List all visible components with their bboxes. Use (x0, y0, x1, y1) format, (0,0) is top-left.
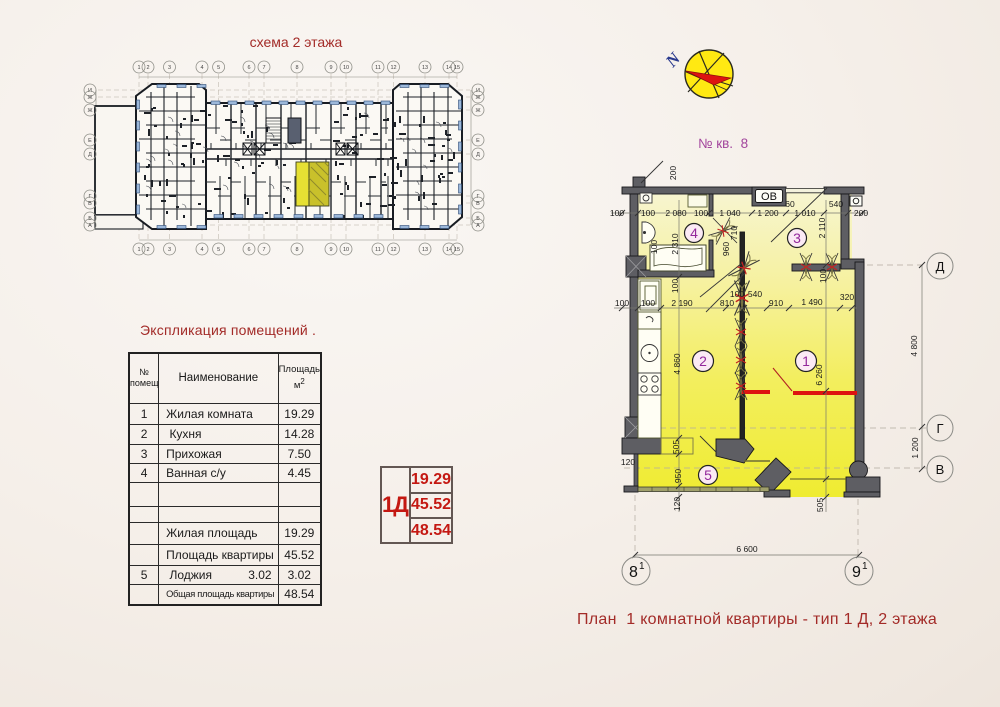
svg-text:В: В (476, 201, 480, 207)
svg-text:10: 10 (343, 65, 349, 71)
svg-text:Д: Д (88, 152, 92, 158)
svg-text:1: 1 (137, 65, 140, 71)
svg-text:8: 8 (295, 65, 298, 71)
svg-text:3: 3 (168, 247, 171, 253)
svg-text:5: 5 (217, 247, 220, 253)
svg-text:Д: Д (936, 259, 945, 274)
svg-text:4: 4 (200, 65, 203, 71)
svg-text:505: 505 (671, 440, 681, 454)
svg-text:2 190: 2 190 (671, 298, 693, 308)
svg-text:4 800: 4 800 (909, 335, 919, 357)
svg-text:200: 200 (668, 166, 678, 180)
svg-text:5: 5 (704, 467, 712, 483)
svg-text:Ж: Ж (475, 108, 480, 114)
svg-text:Ж: Ж (87, 108, 92, 114)
svg-text:6 600: 6 600 (736, 544, 758, 554)
svg-text:ОВ: ОВ (761, 191, 777, 203)
svg-text:9: 9 (852, 564, 861, 581)
svg-text:1: 1 (802, 353, 810, 369)
svg-text:6 260: 6 260 (814, 364, 824, 386)
svg-text:2 310: 2 310 (670, 233, 680, 255)
svg-text:Ж: Ж (87, 95, 92, 101)
svg-text:710: 710 (729, 226, 739, 240)
svg-text:9: 9 (329, 65, 332, 71)
svg-text:12: 12 (390, 65, 396, 71)
svg-text:1 200: 1 200 (757, 208, 779, 218)
svg-text:7: 7 (262, 65, 265, 71)
svg-text:60: 60 (785, 199, 795, 209)
svg-text:1: 1 (862, 561, 868, 572)
svg-text:2 110: 2 110 (817, 217, 827, 238)
svg-text:100: 100 (610, 208, 624, 218)
svg-text:А: А (88, 223, 92, 229)
svg-text:100: 100 (730, 289, 744, 299)
svg-text:540: 540 (829, 199, 843, 209)
svg-text:10: 10 (343, 247, 349, 253)
svg-text:1 010: 1 010 (794, 208, 816, 218)
svg-text:4: 4 (200, 247, 203, 253)
svg-text:100: 100 (649, 240, 659, 254)
svg-text:100: 100 (670, 279, 680, 293)
svg-text:В: В (88, 201, 92, 207)
svg-text:13: 13 (422, 247, 428, 253)
svg-text:11: 11 (375, 247, 381, 253)
svg-text:8: 8 (629, 564, 638, 581)
svg-text:8: 8 (295, 247, 298, 253)
svg-text:910: 910 (769, 298, 783, 308)
svg-text:4: 4 (690, 225, 698, 241)
svg-text:960: 960 (721, 242, 731, 256)
svg-text:5: 5 (217, 65, 220, 71)
svg-text:А: А (476, 223, 480, 229)
svg-text:100: 100 (641, 208, 655, 218)
svg-text:7: 7 (262, 247, 265, 253)
svg-text:15: 15 (454, 247, 460, 253)
svg-text:1: 1 (639, 561, 645, 572)
svg-text:2: 2 (146, 247, 149, 253)
svg-text:320: 320 (840, 292, 854, 302)
svg-text:100: 100 (641, 298, 655, 308)
svg-text:9: 9 (329, 247, 332, 253)
svg-text:Д: Д (476, 152, 480, 158)
svg-text:Е: Е (88, 138, 92, 144)
svg-text:100: 100 (818, 269, 828, 283)
svg-text:12: 12 (390, 247, 396, 253)
svg-text:100: 100 (615, 298, 629, 308)
svg-text:В: В (936, 462, 945, 477)
svg-text:505: 505 (815, 498, 825, 512)
svg-text:1 040: 1 040 (719, 208, 741, 218)
svg-text:1 200: 1 200 (910, 437, 920, 459)
svg-text:1 490: 1 490 (801, 297, 823, 307)
svg-text:2: 2 (699, 353, 707, 369)
svg-text:3: 3 (168, 65, 171, 71)
svg-text:4 860: 4 860 (672, 353, 682, 375)
svg-text:Ж: Ж (475, 95, 480, 101)
svg-text:15: 15 (454, 65, 460, 71)
svg-text:810: 810 (720, 298, 734, 308)
svg-text:6: 6 (247, 247, 250, 253)
svg-text:120: 120 (672, 497, 682, 511)
svg-text:2 080: 2 080 (665, 208, 687, 218)
svg-text:200: 200 (854, 208, 868, 218)
svg-text:950: 950 (673, 469, 683, 483)
svg-text:3: 3 (793, 230, 801, 246)
svg-text:13: 13 (422, 65, 428, 71)
svg-text:100: 100 (694, 208, 708, 218)
svg-text:Е: Е (476, 138, 480, 144)
svg-text:6: 6 (247, 65, 250, 71)
svg-text:540: 540 (748, 289, 762, 299)
svg-text:120: 120 (621, 457, 635, 467)
svg-text:2: 2 (146, 65, 149, 71)
svg-text:11: 11 (375, 65, 381, 71)
svg-text:Г: Г (936, 421, 943, 436)
svg-text:N: N (661, 48, 684, 71)
svg-text:1: 1 (137, 247, 140, 253)
